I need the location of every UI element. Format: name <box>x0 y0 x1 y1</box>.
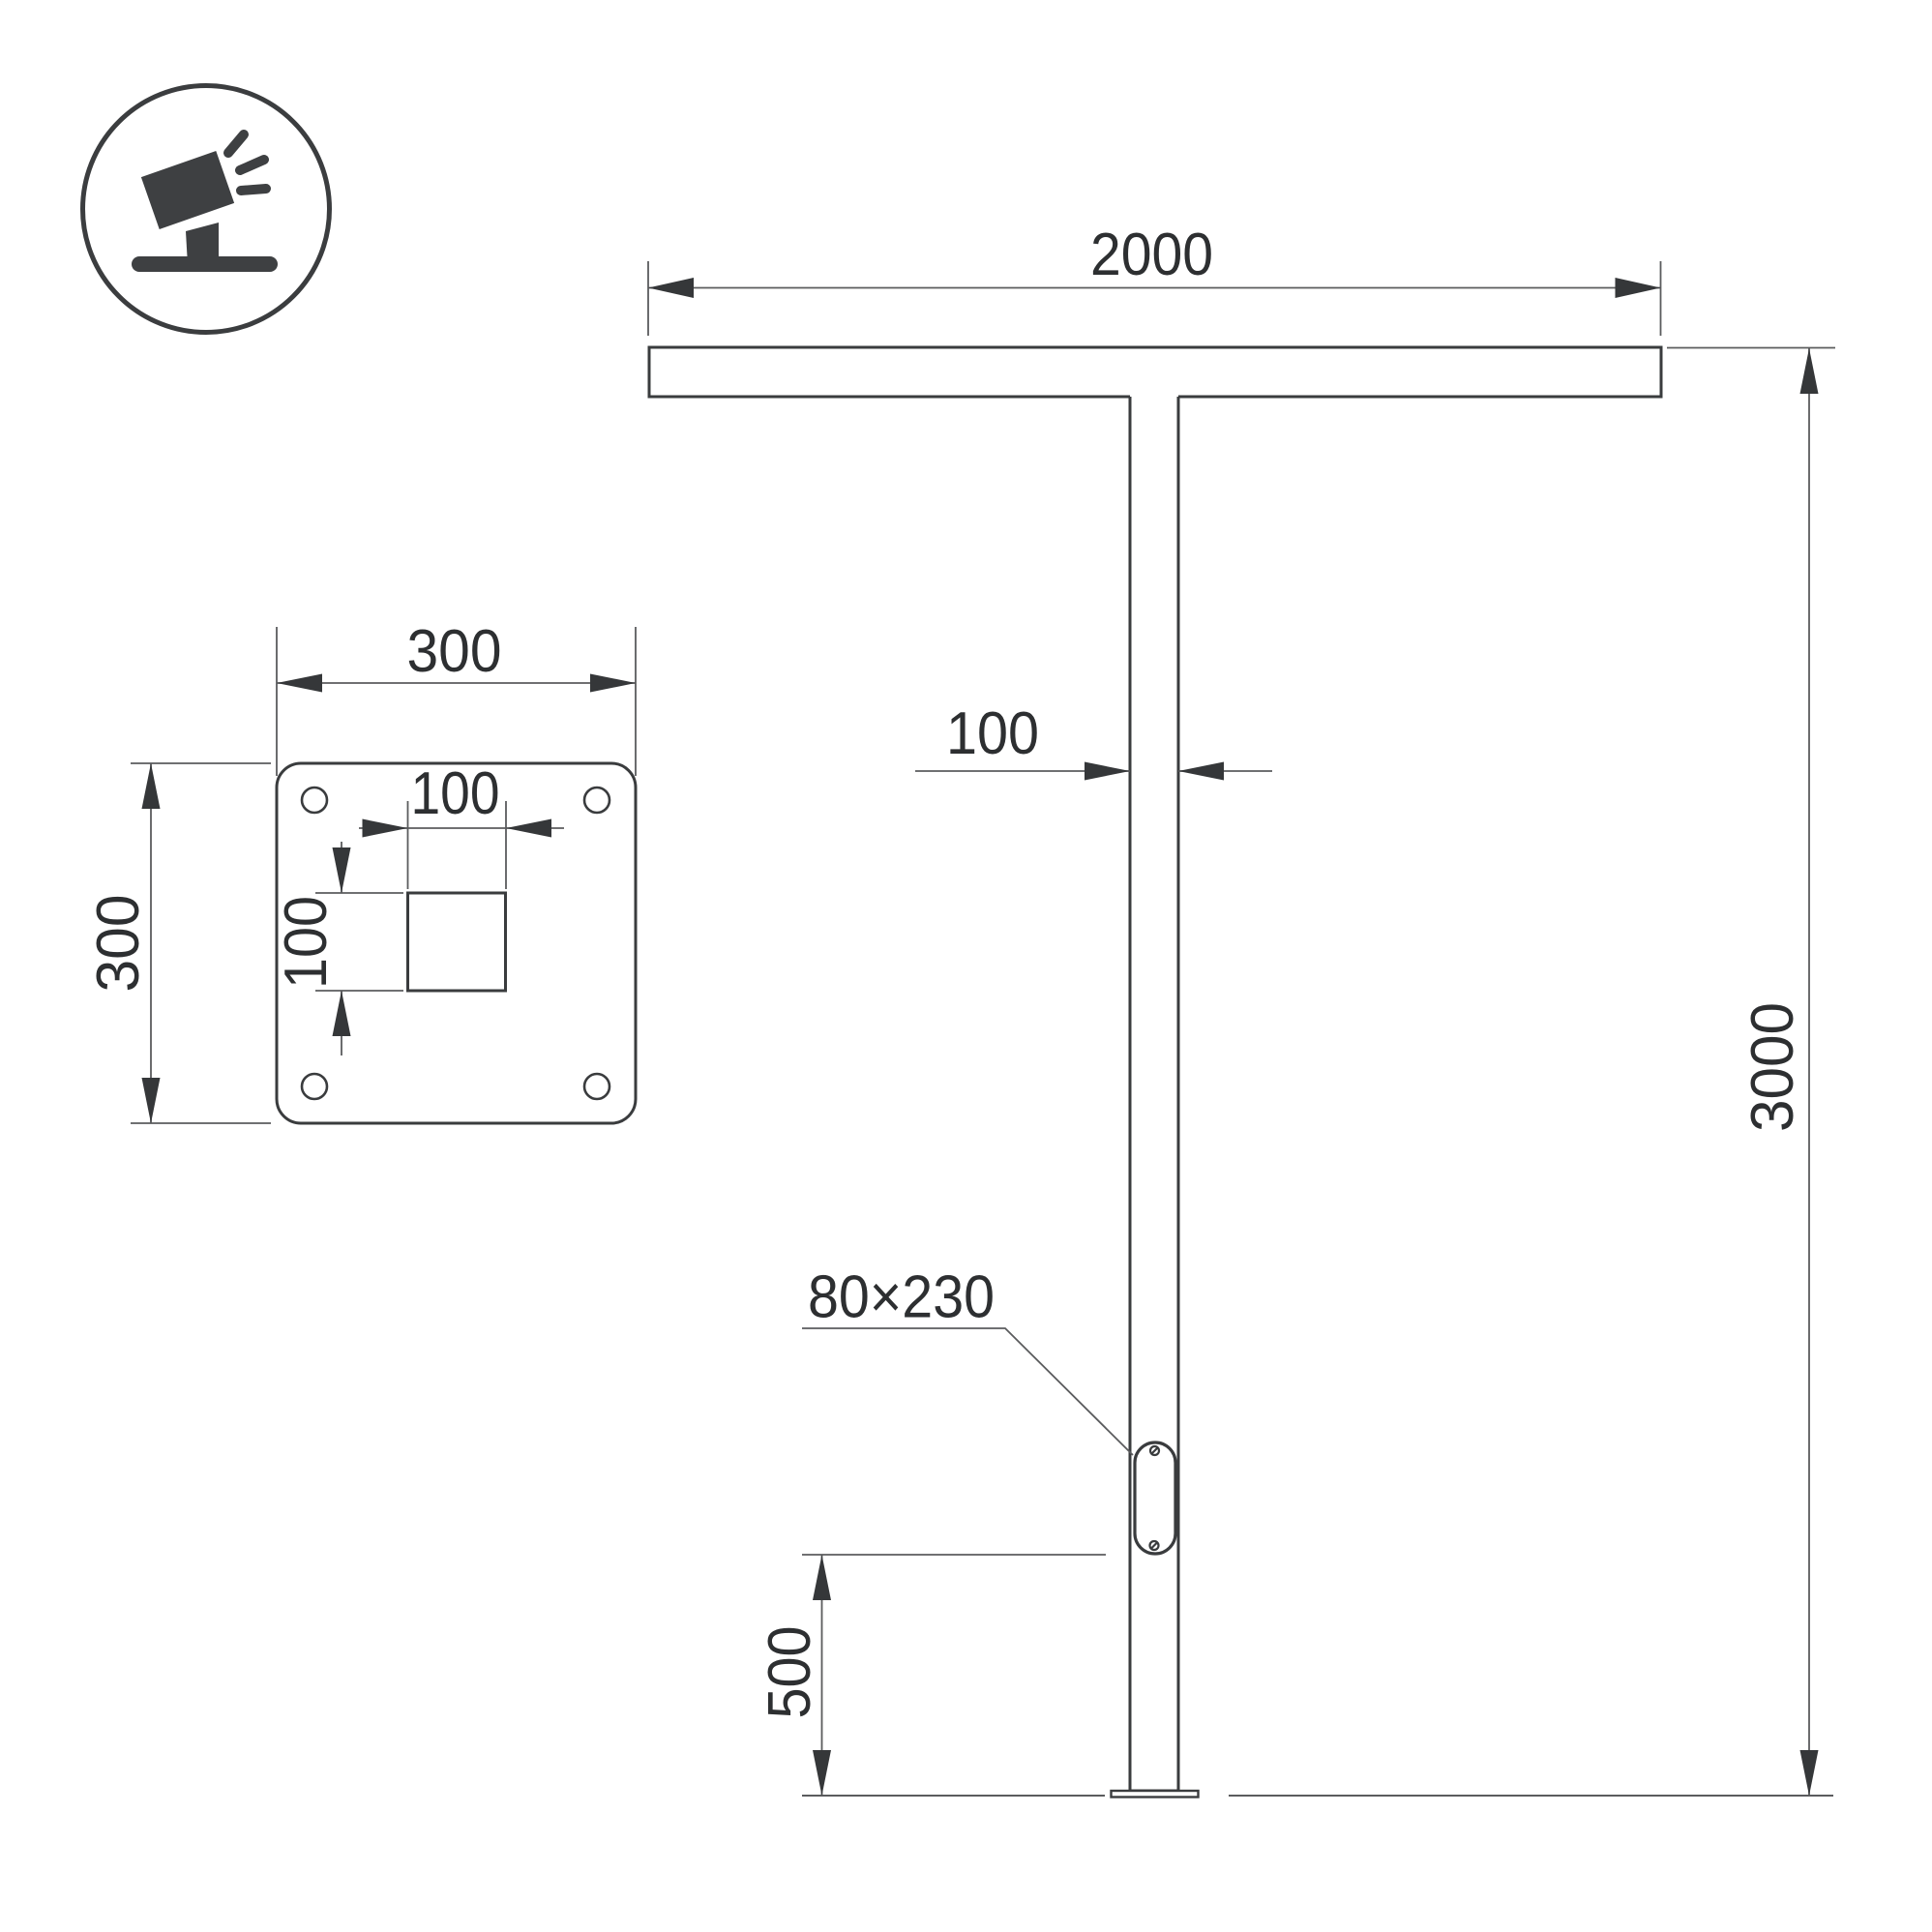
svg-text:500: 500 <box>757 1626 823 1719</box>
svg-text:300: 300 <box>85 895 152 993</box>
svg-text:100: 100 <box>411 760 500 827</box>
svg-text:2000: 2000 <box>1090 222 1213 288</box>
svg-text:80×230: 80×230 <box>808 1264 995 1331</box>
svg-text:100: 100 <box>946 700 1039 767</box>
svg-text:3000: 3000 <box>1739 1002 1806 1132</box>
svg-text:100: 100 <box>273 896 340 989</box>
svg-text:300: 300 <box>407 618 502 685</box>
